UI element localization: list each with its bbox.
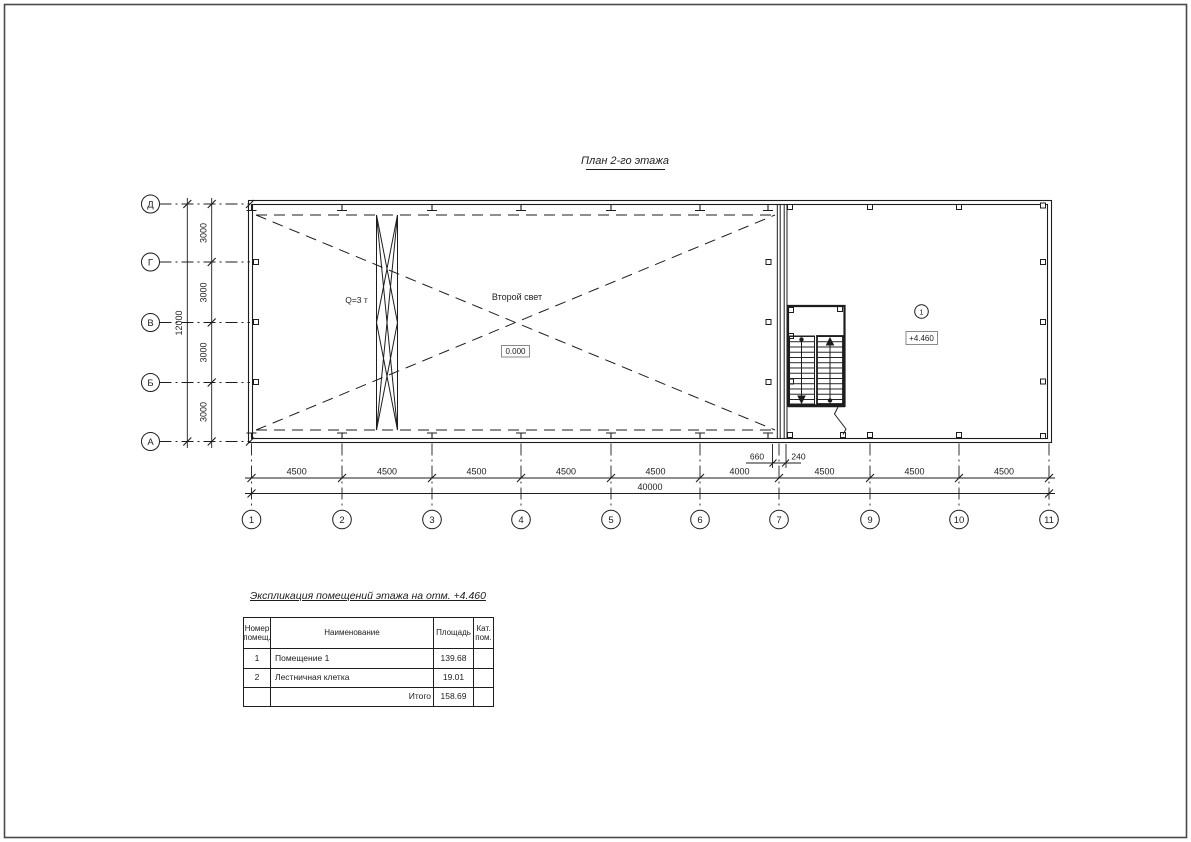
spec-row2-cat [474,669,493,688]
row-bubble-3: Б [147,378,153,389]
col-bubble-6: 7 [776,515,781,526]
spec-row2-num: 2 [244,669,271,688]
level-zero-value: 0.000 [505,347,526,356]
dim-col-8: 4500 [994,467,1014,477]
row-bubble-1: Г [148,257,153,268]
level-mark-second: +4.460 [906,332,938,345]
col-bubble-1: 2 [339,515,344,526]
spec-row1-cat [474,649,493,669]
crane-bracing [377,215,398,430]
partition-wall [777,205,787,439]
wall-squares [254,203,1046,439]
door-swing-line [835,407,847,435]
col-bubble-5: 6 [697,515,702,526]
room-marker-number: 1 [919,307,923,316]
col-bubble-2: 3 [429,515,434,526]
drawing-sheet: План 2-го этажа [0,0,1191,842]
dim-stair-660: 660 [750,452,764,462]
dim-col-1: 4500 [377,467,397,477]
dim-row-total: 12000 [174,310,184,335]
dim-col-2: 4500 [466,467,486,477]
spec-table: Номер помещ. Наименование Площадь Кат. п… [243,617,494,707]
col-axis-bubbles [242,510,1058,529]
spec-total-area: 158.69 [434,688,474,706]
spec-row1-name: Помещение 1 [271,649,434,669]
floor-plan-canvas: План 2-го этажа [0,0,1191,842]
dim-col-7: 4500 [904,467,924,477]
second-light-label: Второй свет [492,292,542,302]
spec-header-num: Номер помещ. [244,618,271,649]
column-markers [247,204,774,439]
dim-row-2: 3000 [199,342,209,362]
stairwell [788,306,846,435]
spec-row1-area: 139.68 [434,649,474,669]
spec-header-name: Наименование [271,618,434,649]
spec-row2-area: 19.01 [434,669,474,688]
dim-col-5: 4000 [729,467,749,477]
col-bubble-8: 10 [954,515,965,526]
spec-total-cat [474,688,493,706]
dim-row-1: 3000 [199,282,209,302]
col-bubble-9: 11 [1044,515,1054,526]
col-bubble-7: 9 [867,515,872,526]
spec-row2-name: Лестничная клетка [271,669,434,688]
dim-col-0: 4500 [287,467,307,477]
dim-col-3: 4500 [556,467,576,477]
sheet-frame [5,5,1187,838]
dim-row-0: 3000 [199,223,209,243]
spec-table-title: Экспликация помещений этажа на отм. +4.4… [243,590,493,602]
dim-stair-240: 240 [791,452,805,462]
col-bubble-3: 4 [518,515,523,526]
spec-total-num [244,688,271,706]
col-bubble-4: 5 [608,515,613,526]
dim-row-3: 3000 [199,402,209,422]
dim-col-total: 40000 [637,482,662,492]
level-mark-zero: 0.000 [502,346,530,358]
building-walls [249,201,1052,443]
row-bubble-4: А [147,437,154,448]
level-second-value: +4.460 [909,334,934,343]
plan-title: План 2-го этажа [581,155,669,167]
row-bubble-2: В [147,318,153,329]
spec-header-cat: Кат. пом. [474,618,493,649]
row-bubble-0: Д [147,199,154,210]
col-axes [252,444,1050,510]
dim-col-6: 4500 [814,467,834,477]
col-bubble-0: 1 [249,515,254,526]
room-marker: 1 [915,305,929,319]
second-light-outline [256,215,775,430]
spec-header-area: Площадь [434,618,474,649]
spec-total-label: Итого [271,688,434,706]
crane-capacity-label: Q=3 т [345,295,368,305]
dim-col-4: 4500 [645,467,665,477]
spec-row1-num: 1 [244,649,271,669]
